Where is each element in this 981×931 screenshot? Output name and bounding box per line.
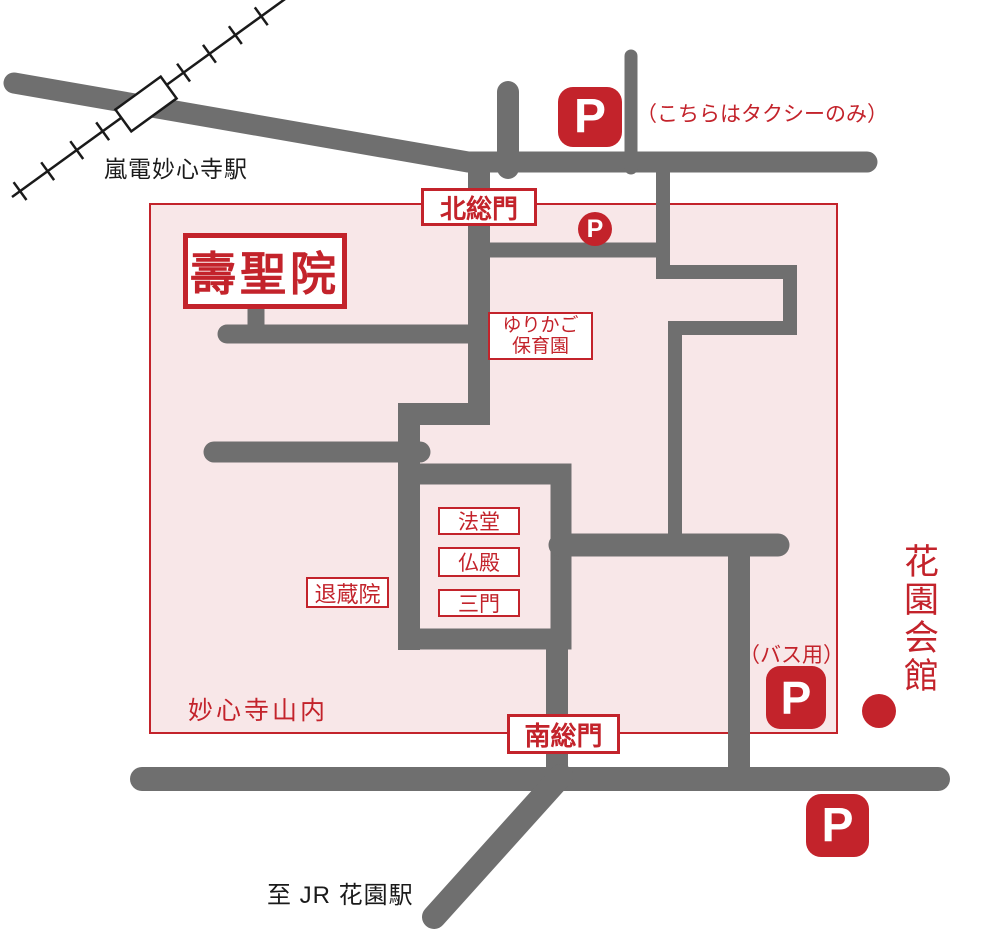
south-gate-label: 南総門 [507,714,620,754]
hanazono-hall-label: 花園会館 [893,543,944,695]
sanmon-label: 三門 [438,589,520,617]
north-gate-parking-icon: P [578,212,612,246]
taxi-only-note: （こちらはタクシーのみ） [636,98,888,128]
north-gate-label: 北総門 [421,188,537,226]
jushoin-label-box: 壽聖院 [183,233,347,309]
to-jr-station-label: 至 JR 花園駅 [267,875,414,910]
road-to-jr-station [434,776,561,917]
hanazono-hall-dot [862,694,896,728]
parking-glyph: P [587,217,604,242]
taizoin-label: 退蔵院 [306,577,389,608]
south-parking-icon: P [806,794,869,857]
butsuden-label: 仏殿 [438,547,520,577]
temple-access-map: 嵐電妙心寺駅 壽聖院 北総門 P （こちらはタクシーのみ） P ゆりかご 保育園… [0,0,981,931]
nursery-label-line2: 保育園 [512,336,569,357]
bus-parking-note: （バス用） [739,639,844,669]
map-canvas [0,0,981,931]
parking-glyph: P [821,802,853,850]
bus-parking-icon: P [766,666,826,729]
station-marker [115,77,176,132]
parking-glyph: P [574,93,606,141]
nursery-label: ゆりかご 保育園 [488,312,593,360]
hatto-label: 法堂 [438,507,520,535]
randen-station-label: 嵐電妙心寺駅 [104,150,248,184]
nursery-label-line1: ゆりかご [502,315,578,336]
parking-glyph: P [781,675,812,721]
taxi-parking-icon: P [558,87,622,147]
precinct-name-label: 妙心寺山内 [188,691,328,727]
